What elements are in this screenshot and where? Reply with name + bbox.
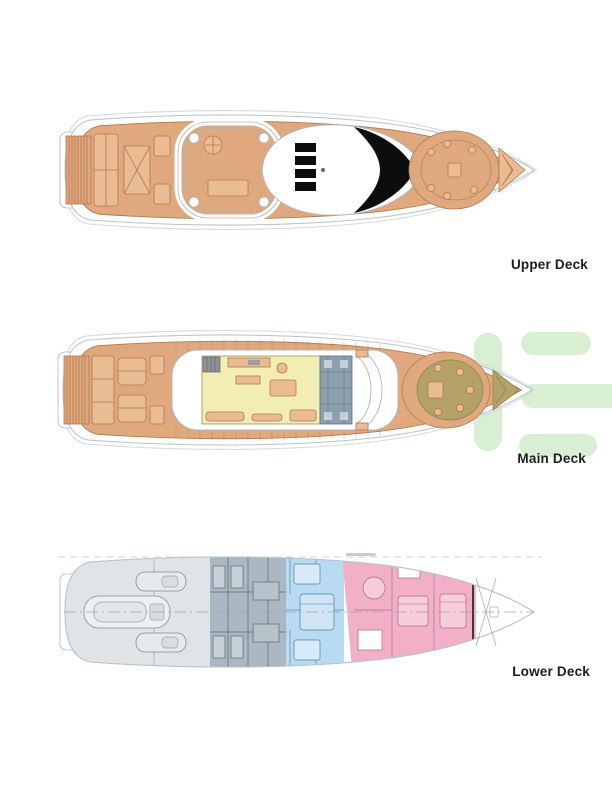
upper-deck-plan	[58, 110, 542, 230]
main-deck-label: Main Deck	[517, 451, 586, 466]
foredeck-lounge	[409, 131, 525, 209]
lower-deck-label: Lower Deck	[512, 664, 590, 679]
main-deck-plan	[56, 330, 542, 450]
upper-deck-label: Upper Deck	[511, 257, 588, 272]
tiny-plan-caption	[346, 553, 376, 556]
lower-deck-plan	[58, 552, 542, 672]
page: Upper Deck	[0, 0, 612, 792]
foredeck-seating	[402, 352, 519, 428]
galley-stairs	[320, 356, 352, 424]
salon	[172, 350, 398, 430]
